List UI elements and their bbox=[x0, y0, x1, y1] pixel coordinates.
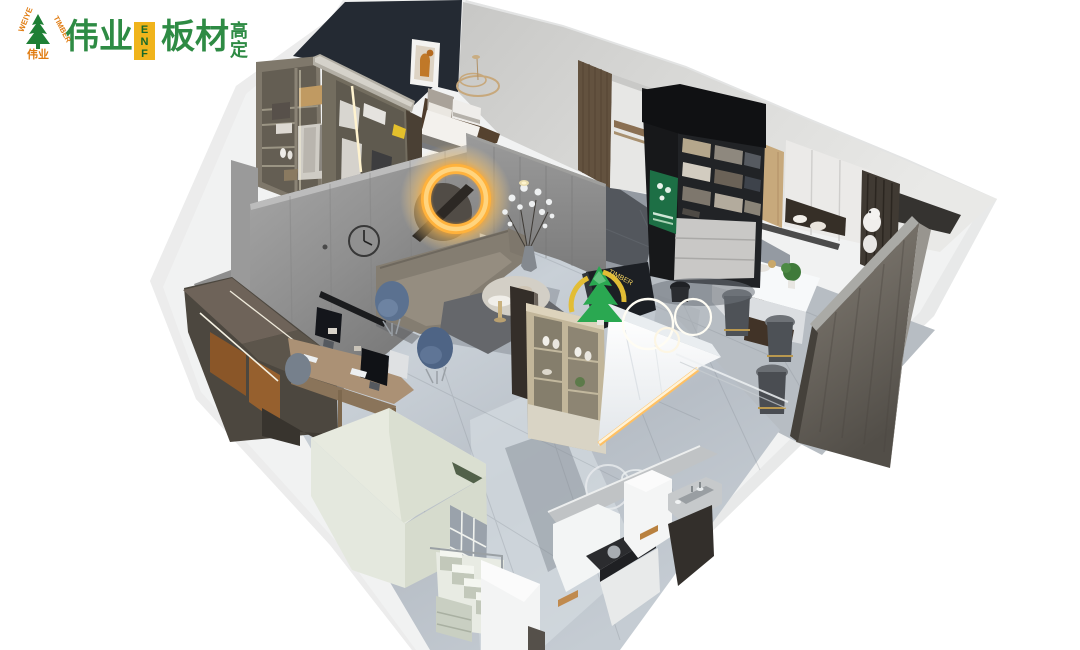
svg-text:F: F bbox=[141, 48, 148, 60]
svg-text:伟业: 伟业 bbox=[65, 18, 133, 56]
svg-text:E: E bbox=[141, 24, 148, 36]
svg-text:定: 定 bbox=[230, 39, 248, 60]
svg-text:伟业: 伟业 bbox=[27, 47, 49, 61]
svg-text:WEIYE: WEIYE bbox=[17, 6, 35, 33]
svg-text:N: N bbox=[141, 36, 149, 48]
svg-text:高: 高 bbox=[230, 20, 248, 41]
svg-text:板材: 板材 bbox=[161, 18, 229, 56]
